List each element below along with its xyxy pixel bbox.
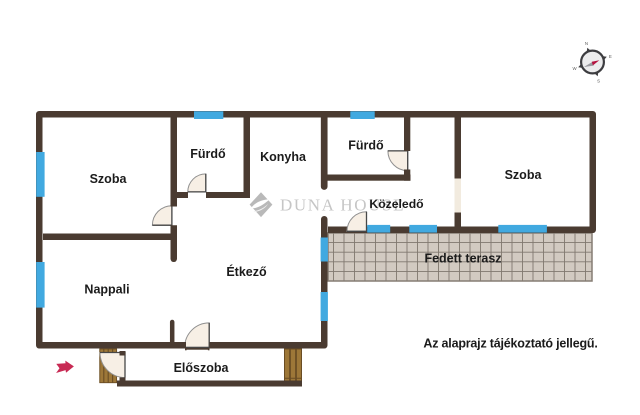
svg-text:Nappali: Nappali: [84, 283, 129, 297]
svg-text:Előszoba: Előszoba: [174, 361, 230, 375]
svg-text:N: N: [585, 41, 588, 46]
svg-text:Szoba: Szoba: [90, 172, 128, 186]
svg-text:Étkező: Étkező: [226, 264, 267, 279]
svg-text:Fürdő: Fürdő: [348, 139, 384, 153]
svg-text:Közeledő: Közeledő: [369, 197, 423, 211]
svg-text:Szoba: Szoba: [505, 168, 543, 182]
svg-text:Konyha: Konyha: [260, 150, 307, 164]
svg-text:Az alaprajz tájékoztató jelleg: Az alaprajz tájékoztató jellegű.: [423, 337, 597, 351]
svg-text:E: E: [609, 54, 612, 59]
svg-text:Fedett terasz: Fedett terasz: [424, 252, 501, 266]
svg-text:S: S: [597, 79, 600, 84]
svg-text:Fürdő: Fürdő: [190, 147, 226, 161]
